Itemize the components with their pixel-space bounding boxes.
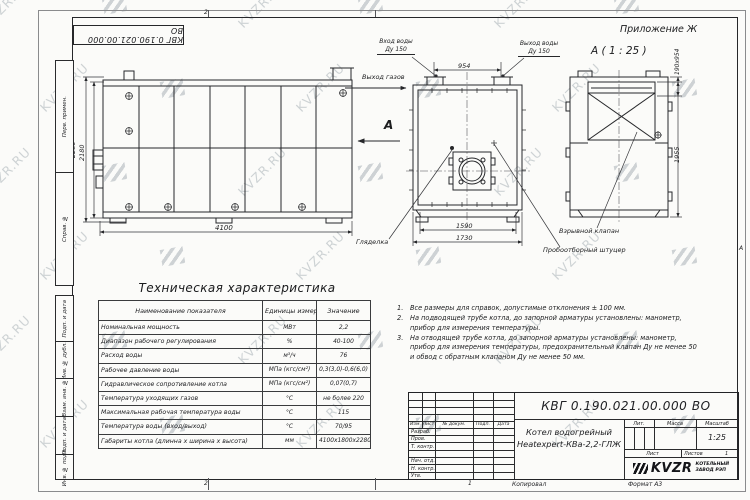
sight-glass-label: Гляделка bbox=[356, 238, 388, 246]
revision-header: Лист bbox=[422, 422, 435, 427]
tech-table: Наименование показателя Единицы измерени… bbox=[98, 300, 371, 449]
revision-header: № докум. bbox=[435, 422, 473, 427]
view-a-title: А ( 1 : 25 ) bbox=[591, 45, 647, 57]
tech-row: Номинальная мощностьМВт2,2 bbox=[99, 321, 371, 335]
tech-cell: 0,3(3,0)-0,6(6,0) bbox=[317, 363, 371, 377]
water-inlet-label: Вход воды Ду 150 bbox=[377, 38, 415, 55]
signature-row-label: Н. контр. bbox=[411, 466, 435, 472]
tech-row: Диапазон рабочего регулирования%40-100 bbox=[99, 335, 371, 349]
margin-stamp-label: Инв. № дубл. bbox=[62, 342, 68, 380]
signature-row-label: Т. контр. bbox=[411, 444, 434, 450]
tech-cell: Диапазон рабочего регулирования bbox=[99, 335, 263, 349]
margin-stamp-box: Подп. и дата bbox=[55, 295, 74, 343]
side-view bbox=[93, 68, 354, 223]
front-view bbox=[413, 77, 522, 222]
note-number: 1. bbox=[397, 304, 410, 313]
note-number: 2. bbox=[397, 314, 410, 333]
side-view-bolts bbox=[125, 89, 347, 211]
tech-row: Гидравлическое сопротивление котлаМПа (к… bbox=[99, 377, 371, 391]
tech-cell: Гидравлическое сопротивление котла bbox=[99, 377, 263, 391]
product-name-line1: Котел водогрейный bbox=[526, 426, 612, 438]
tech-cell: 70/95 bbox=[317, 420, 371, 434]
revision-header: Дата bbox=[493, 422, 514, 427]
kvzr-logo-icon bbox=[633, 463, 648, 474]
signature-row-label: Нач. отд. bbox=[411, 458, 435, 464]
sheets-label: Листов bbox=[684, 451, 703, 457]
dim-width-inner: 1590 bbox=[456, 222, 473, 230]
dim-stub-spacing: 954 bbox=[458, 62, 470, 70]
notes-list: 1.Все размеры для справок, допустимые от… bbox=[397, 304, 697, 363]
tech-cell: °С bbox=[263, 420, 317, 434]
title-block: Изм.Лист№ докум.Подп.Дата Разраб.Пров.Т.… bbox=[408, 392, 739, 480]
tech-row: Максимальная рабочая температура воды°С1… bbox=[99, 406, 371, 420]
tech-cell: Габариты котла (длинна х ширина х высота… bbox=[99, 434, 263, 448]
factory-logo: KVZR КОТЕЛЬНЫЙ ЗАВОД РЭП bbox=[624, 457, 738, 479]
tech-table-header-row: Наименование показателя Единицы измерени… bbox=[99, 301, 371, 321]
dim-width-outer: 1730 bbox=[456, 234, 473, 242]
tech-cell: МПа (кгс/см²) bbox=[263, 363, 317, 377]
tech-table-title: Техническая характеристика bbox=[104, 281, 370, 295]
margin-stamp-label: Взам. инв. № bbox=[62, 379, 68, 417]
note-item: 3.На отводящей трубе котла, до запорной … bbox=[397, 334, 697, 362]
note-text: Все размеры для справок, допустимые откл… bbox=[410, 304, 697, 313]
margin-stamp-label: Справ. № bbox=[62, 215, 68, 242]
tech-cell: °С bbox=[263, 406, 317, 420]
tech-cell: Температура воды (вход/выход) bbox=[99, 420, 263, 434]
tech-cell: °С bbox=[263, 391, 317, 405]
signature-row-label: Утв. bbox=[411, 473, 422, 479]
tech-cell: мм bbox=[263, 434, 317, 448]
tech-cell: % bbox=[263, 335, 317, 349]
tech-header-value: Значение bbox=[317, 301, 371, 321]
product-name-line2: Heatexpert-КВа-2,2-ГЛЖ bbox=[517, 438, 621, 450]
note-item: 2.На подводящей трубе котла, до запорной… bbox=[397, 314, 697, 333]
logo-text: KVZR bbox=[651, 461, 693, 476]
tech-cell: Рабочее давление воды bbox=[99, 363, 263, 377]
tech-cell: МВт bbox=[263, 321, 317, 335]
note-number: 3. bbox=[397, 334, 410, 362]
drawing-sheet: KVZR.RUKVZR.RUKVZR.RUKVZR.RUKVZR.RUKVZR.… bbox=[0, 0, 750, 500]
title-block-doc-number: КВГ 0.190.021.00.000 ВО bbox=[514, 393, 738, 419]
tech-cell: Температура уходящих газов bbox=[99, 391, 263, 405]
margin-stamp-label: Перв. примен. bbox=[62, 96, 68, 137]
scale-label: Масштаб bbox=[696, 421, 738, 427]
appendix-label: Приложение Ж bbox=[620, 24, 697, 35]
signature-row-label: Пров. bbox=[411, 436, 426, 442]
sight-glass-mark bbox=[450, 146, 454, 150]
lit-label: Лит. bbox=[624, 421, 654, 427]
tech-row: Габариты котла (длинна х ширина х высота… bbox=[99, 434, 371, 448]
dim-rear-height: 1955 bbox=[673, 146, 681, 163]
tech-header-units: Единицы измерения bbox=[263, 301, 317, 321]
note-text: На подводящей трубе котла, до запорной а… bbox=[410, 314, 697, 333]
revision-header: Подп. bbox=[473, 422, 493, 427]
product-name: Котел водогрейный Heatexpert-КВа-2,2-ГЛЖ bbox=[514, 419, 624, 479]
tech-cell: Максимальная рабочая температура воды bbox=[99, 406, 263, 420]
sheet-label: Лист bbox=[624, 451, 681, 457]
sampling-fitting-mark bbox=[491, 140, 497, 146]
margin-stamp-box: Взам. инв. № bbox=[55, 378, 74, 418]
margin-stamp-box: Инв. № дубл. bbox=[55, 341, 74, 380]
mass-label: Масса bbox=[654, 421, 696, 427]
logo-subtitle-2: ЗАВОД РЭП bbox=[695, 468, 729, 474]
margin-stamp-box: Справ. № bbox=[55, 172, 74, 286]
tech-cell: м³/ч bbox=[263, 349, 317, 363]
tech-row: Температура воды (вход/выход)°С70/95 bbox=[99, 420, 371, 434]
signature-row-label: Разраб. bbox=[411, 429, 431, 435]
tech-cell: Расход воды bbox=[99, 349, 263, 363]
dim-flue-size: 190х954 bbox=[674, 49, 681, 75]
section-arrow-label: А bbox=[384, 118, 393, 132]
water-outlet-label: Выход воды Ду 150 bbox=[518, 40, 560, 57]
explosion-valve-label: Взрывной клапан bbox=[559, 227, 619, 235]
front-view-ticks bbox=[409, 88, 526, 207]
tech-cell: 2,2 bbox=[317, 321, 371, 335]
note-text: На отводящей трубе котла, до запорной ар… bbox=[410, 334, 697, 362]
margin-stamp-box: Перв. примен. bbox=[55, 60, 74, 174]
gas-outlet-label: Выход газов bbox=[362, 73, 405, 81]
tech-cell: 0,07(0,7) bbox=[317, 377, 371, 391]
dim-length: 4100 bbox=[215, 224, 233, 232]
note-item: 1.Все размеры для справок, допустимые от… bbox=[397, 304, 697, 313]
scale-value: 1:25 bbox=[696, 433, 738, 442]
dim-height-inner: 2180 bbox=[78, 144, 86, 161]
margin-stamp-label: Подп. и дата bbox=[62, 300, 68, 337]
tech-cell: не более 220 bbox=[317, 391, 371, 405]
tech-cell: Номинальная мощность bbox=[99, 321, 263, 335]
revision-header: Изм. bbox=[409, 422, 422, 427]
sheets-value: 1 bbox=[725, 451, 728, 457]
tech-cell: 115 bbox=[317, 406, 371, 420]
tech-row: Температура уходящих газов°Сне более 220 bbox=[99, 391, 371, 405]
margin-stamp-label: Инв. № подл. bbox=[62, 448, 68, 486]
tech-row: Расход водым³/ч76 bbox=[99, 349, 371, 363]
margin-stamp-box: Инв. № подл. bbox=[55, 454, 74, 480]
tech-header-name: Наименование показателя bbox=[99, 301, 263, 321]
tech-row: Рабочее давление водыМПа (кгс/см²)0,3(3,… bbox=[99, 363, 371, 377]
tech-cell: 4100х1800х2280 bbox=[317, 434, 371, 448]
tech-cell: 76 bbox=[317, 349, 371, 363]
sampling-fitting-label: Пробоотборный штуцер bbox=[543, 246, 626, 254]
tech-cell: МПа (кгс/см²) bbox=[263, 377, 317, 391]
tech-cell: 40-100 bbox=[317, 335, 371, 349]
